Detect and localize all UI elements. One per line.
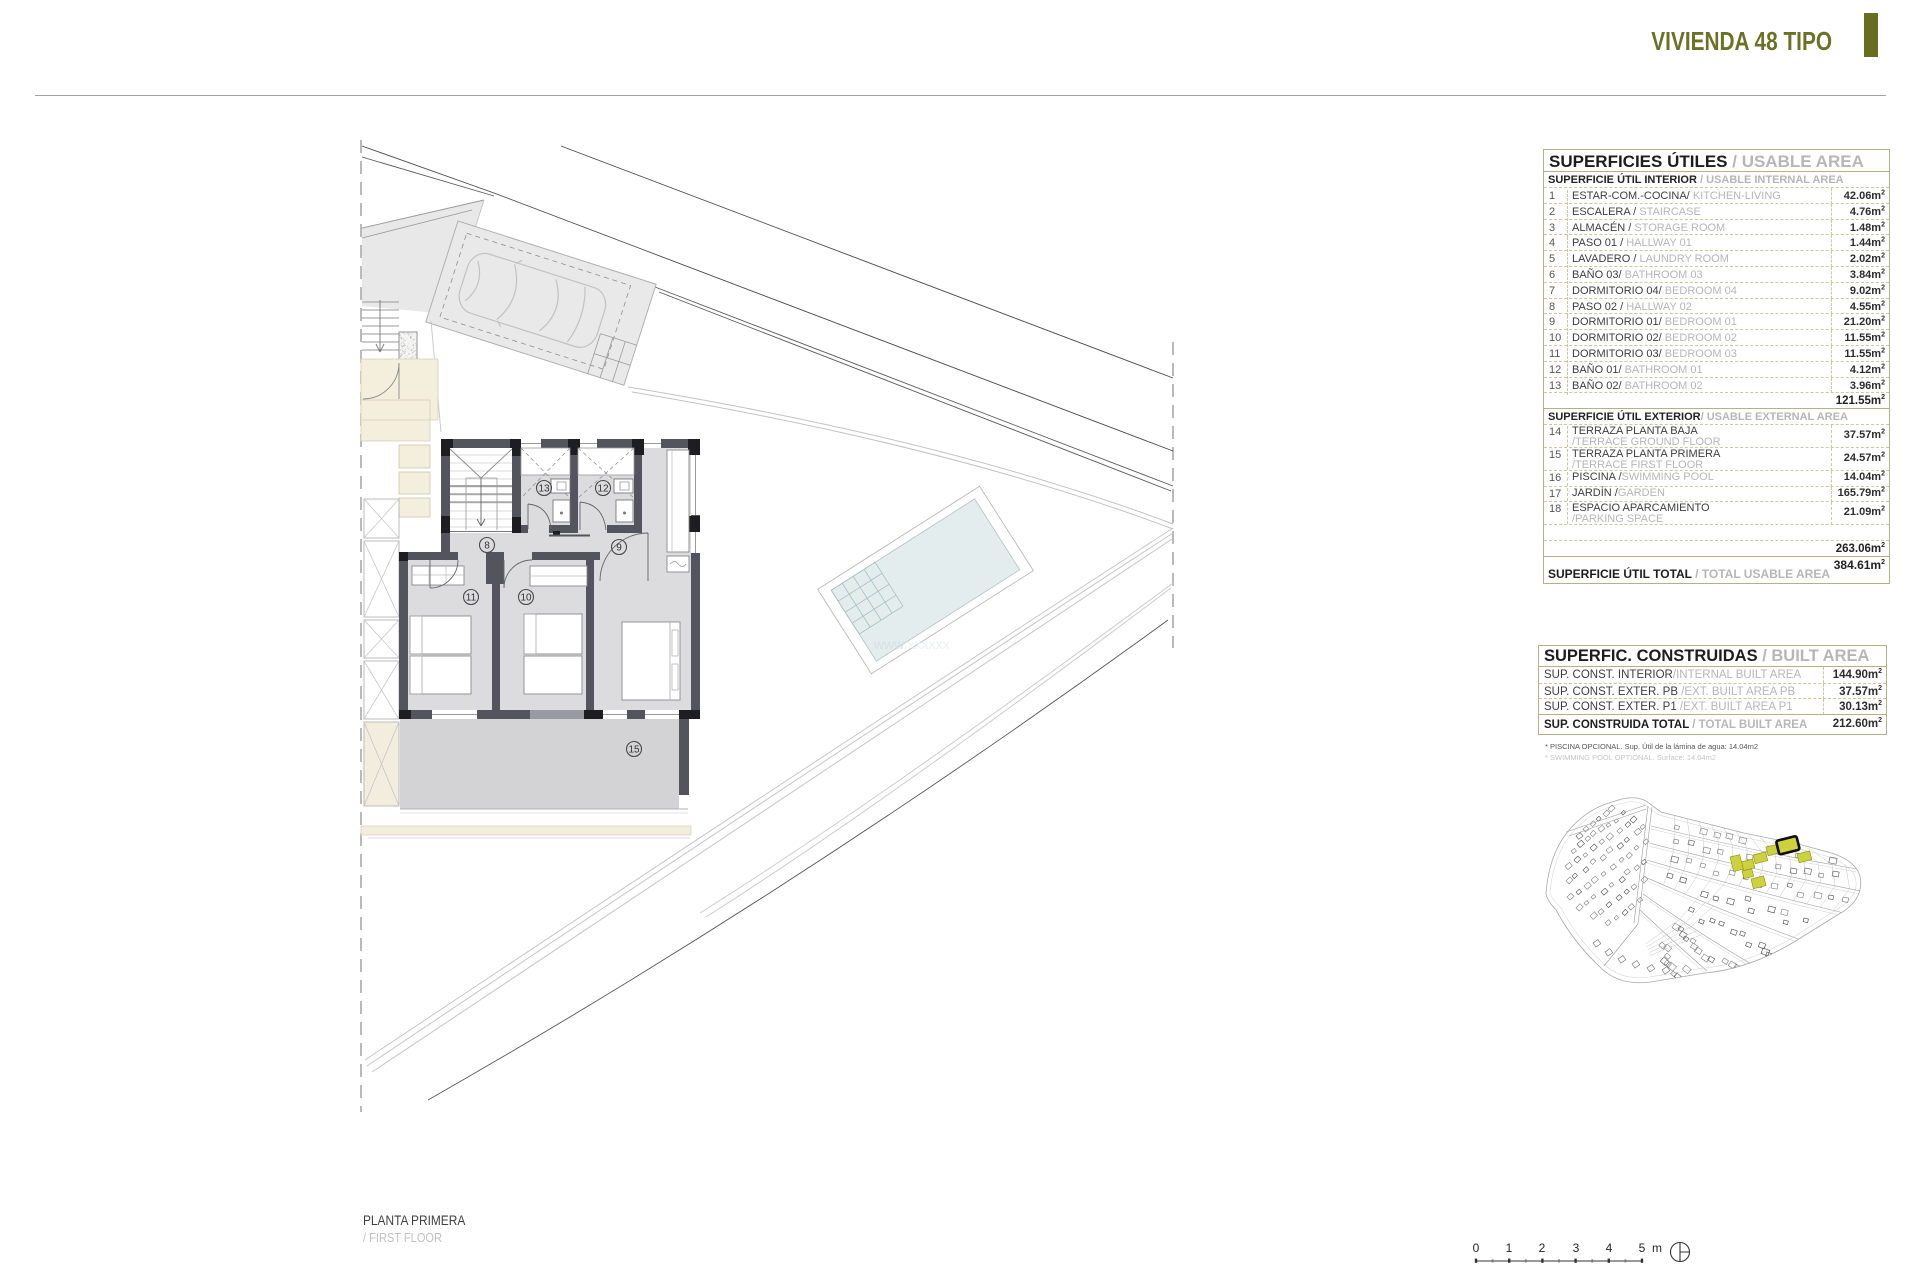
svg-text:8: 8 [484,541,490,552]
svg-text:15: 15 [628,745,640,756]
svg-text:1: 1 [1506,1241,1513,1255]
svg-text:4: 4 [1606,1241,1613,1255]
svg-text:0: 0 [1473,1241,1480,1255]
svg-text:13: 13 [538,484,550,495]
svg-text:3: 3 [1573,1241,1580,1255]
svg-text:10: 10 [520,593,532,604]
svg-text:m: m [1652,1241,1662,1255]
svg-text:12: 12 [597,484,609,495]
svg-text:2: 2 [1539,1241,1546,1255]
svg-text:www.xxxxxx: www.xxxxxx [873,636,949,652]
svg-text:11: 11 [466,593,477,604]
svg-text:9: 9 [616,543,622,554]
svg-text:5: 5 [1639,1241,1646,1255]
